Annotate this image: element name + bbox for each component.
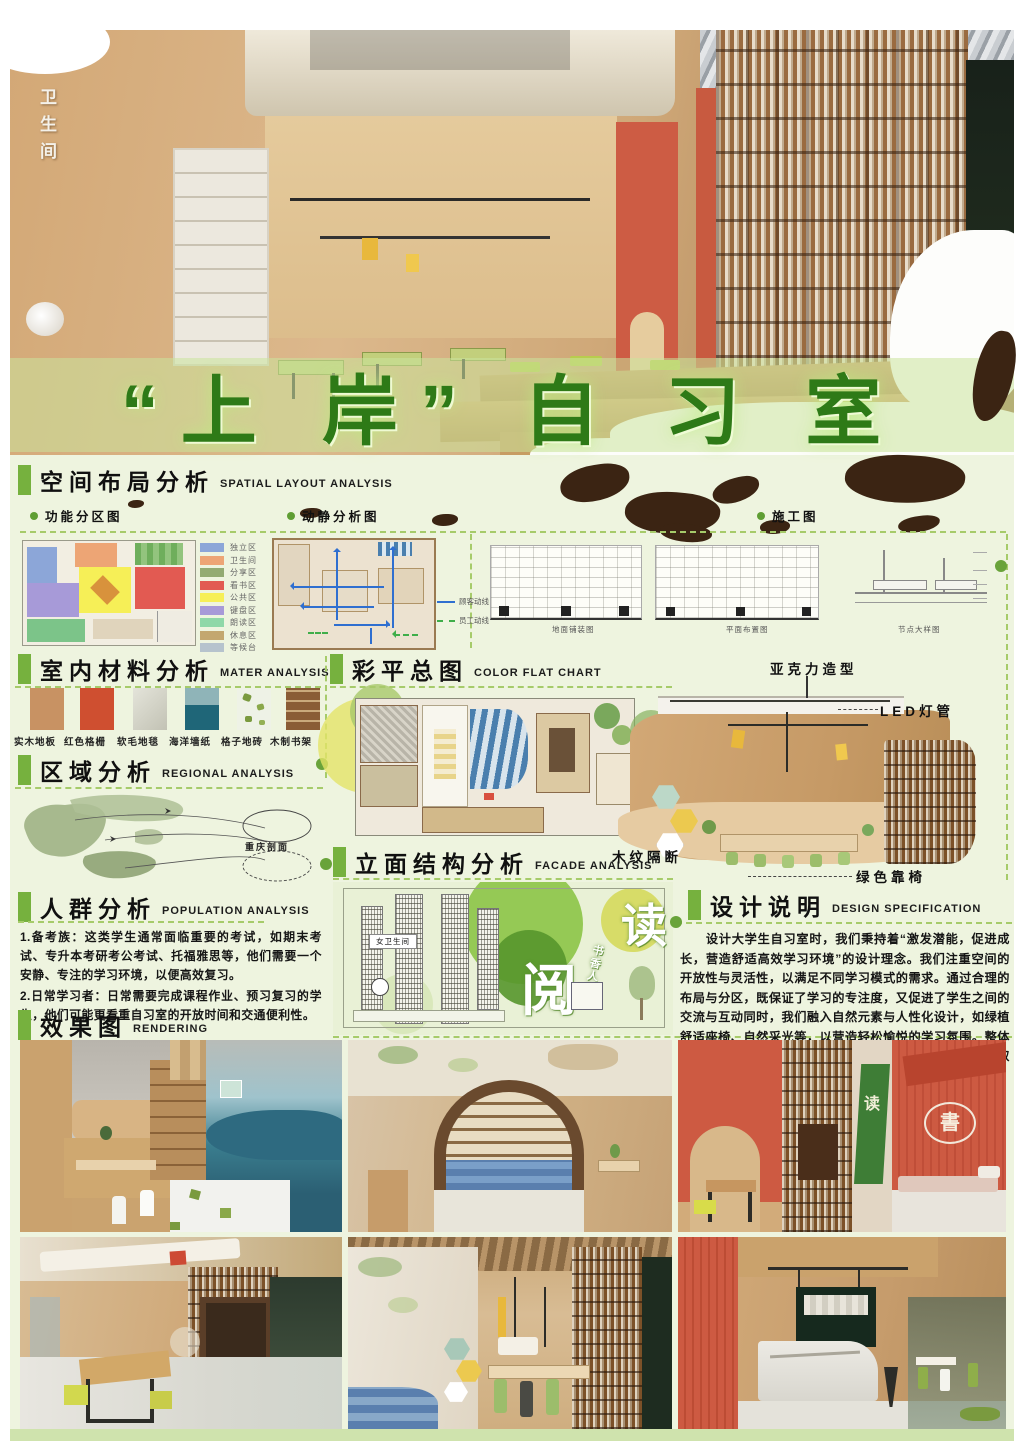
material-label: 格子地砖 <box>221 734 263 748</box>
column-mark <box>499 606 509 616</box>
plan-room <box>360 705 418 763</box>
yellow-panel <box>835 743 848 760</box>
arrow-head <box>388 630 396 638</box>
rendering-image-1 <box>20 1040 342 1232</box>
zone-legend: 独立区 卫生间 分享区 看书区 公共区 键盘区 朗读区 休息区 等候台 <box>200 542 260 655</box>
axon-table <box>720 834 858 852</box>
bookshelf-column <box>477 908 499 1010</box>
dimension-frame <box>343 888 665 1028</box>
room-outline <box>278 544 310 606</box>
zone-green <box>27 619 85 642</box>
legend-item: 卫生间 <box>200 555 260 567</box>
arrow-head <box>333 544 341 552</box>
zone-entry <box>157 611 192 642</box>
construction-drawing-2 <box>655 545 819 620</box>
section-bar <box>18 654 31 684</box>
leader-tick <box>973 552 987 553</box>
population-paragraph-1: 1.备考族：这类学生通常面临重要的考试，如期末考试、专升本考研考公考试、托福雅思… <box>20 928 322 985</box>
section-bar <box>18 465 31 495</box>
restroom-sign: 女卫生间 <box>369 934 417 949</box>
material-swatch <box>80 688 114 730</box>
rendering-image-5 <box>348 1237 672 1429</box>
rendering-image-4 <box>20 1237 342 1429</box>
circulation-plan-drawing <box>272 538 436 650</box>
node-dot-icon <box>995 560 1007 572</box>
plan-feature <box>434 729 456 779</box>
dashed-divider <box>15 787 323 789</box>
keel-box <box>935 580 977 590</box>
green-chair <box>810 854 822 867</box>
construction-drawing-1 <box>490 545 642 620</box>
plant <box>862 824 874 836</box>
leader-tick <box>973 570 987 571</box>
annotation-led: LED灯管 <box>880 700 954 720</box>
axon-bookshelf <box>884 740 976 864</box>
hero-white-corner <box>10 30 110 74</box>
zone-orange <box>75 543 117 567</box>
zone-service <box>93 619 153 639</box>
red-slab <box>696 88 716 372</box>
section-title-en: SPATIAL LAYOUT ANALYSIS <box>220 478 393 490</box>
axon-roof-band <box>658 696 904 714</box>
yellow-panel <box>731 729 745 748</box>
sub-label-zone-plan: 功能分区图 <box>30 506 123 525</box>
column-mark <box>666 607 675 616</box>
ceiling-line <box>855 592 987 594</box>
poster: 卫生间 “上 岸” 自 习 室 <box>0 0 1024 1447</box>
section-bar <box>688 890 701 920</box>
circulation-arrow <box>304 606 374 608</box>
material-label: 软毛地毯 <box>117 734 159 748</box>
section-bar <box>18 755 31 785</box>
pendant-rail <box>290 198 590 201</box>
blue-awning-plan <box>470 709 528 789</box>
material-swatch <box>185 688 219 730</box>
hero-back-wall <box>265 88 617 338</box>
circulation-arrow <box>370 628 372 644</box>
plan-room <box>360 765 418 807</box>
facade-tree <box>629 966 655 1000</box>
legend-item: 员工动线 <box>437 615 489 626</box>
axon-pendant-rail <box>728 724 868 726</box>
arrow-head <box>389 542 397 550</box>
dashed-divider <box>470 534 472 648</box>
arrow-head <box>386 620 394 628</box>
annotation-partition: 木纹隔断 <box>612 846 682 866</box>
plan-body <box>355 698 635 836</box>
leader-line <box>806 676 808 698</box>
bullet-icon <box>757 512 765 520</box>
hero-wall-sign: 卫生间 <box>34 88 59 169</box>
facade-tree-trunk <box>640 998 643 1020</box>
facade-desk <box>571 982 603 1010</box>
section-bar <box>18 1010 31 1040</box>
drawing-caption: 节点大样图 <box>898 624 941 635</box>
leader-tick <box>973 584 987 585</box>
calligraphy-yue: 阅 <box>521 946 577 1027</box>
legend-item: 朗读区 <box>200 617 260 629</box>
material-label: 实木地板 <box>14 734 56 748</box>
staff-arrow <box>308 632 328 634</box>
material-swatch <box>286 688 320 730</box>
green-chair <box>838 852 850 865</box>
section-spatial-header: 空间布局分析 SPATIAL LAYOUT ANALYSIS <box>18 463 393 497</box>
poster-title: “上 岸” 自 习 室 <box>121 350 903 460</box>
material-swatch <box>30 688 64 730</box>
rendering-image-3: 读 書 <box>678 1040 1006 1232</box>
dashed-divider <box>676 922 1012 924</box>
staff-arrow <box>394 634 418 636</box>
yellow-pendant-light <box>362 238 378 260</box>
green-chair <box>754 854 766 867</box>
leader-line <box>838 709 878 710</box>
room-outline <box>378 568 424 604</box>
hero-display-shelf <box>173 148 269 366</box>
zone-green-striped <box>135 543 183 565</box>
annotation-chair: 绿色靠椅 <box>856 866 926 886</box>
bullet-icon <box>30 512 38 520</box>
map-label: 重庆剖面 <box>245 840 289 853</box>
arrow-head <box>296 602 304 610</box>
column-mark <box>619 606 629 616</box>
column-mark <box>736 607 745 616</box>
node-dot-icon <box>670 916 682 928</box>
material-swatch <box>237 688 271 730</box>
dashed-divider <box>18 921 264 923</box>
drawing-caption: 平面布置图 <box>726 624 769 635</box>
legend-item: 休息区 <box>200 630 260 642</box>
facade-steps <box>353 1010 505 1022</box>
arrow-head <box>286 582 294 590</box>
construction-drawing-3 <box>855 550 987 614</box>
legend-item: 顾客动线 <box>437 596 489 607</box>
material-label: 木制书架 <box>270 734 312 748</box>
bottom-strip <box>10 1429 1014 1441</box>
green-chair <box>782 855 794 868</box>
zone-plan-drawing <box>22 540 196 646</box>
section-materials-header: 室内材料分析 MATER ANALYSIS <box>18 652 330 686</box>
circulation-arrow <box>336 550 338 620</box>
hero-ceiling-shadow <box>310 30 570 70</box>
section-bar <box>330 654 343 684</box>
section-design-header: 设计说明 DESIGN SPECIFICATION <box>688 888 981 922</box>
material-swatch <box>133 688 167 730</box>
legend-item: 独立区 <box>200 542 260 554</box>
dashed-divider <box>20 531 1006 533</box>
regional-map: 重庆剖面 <box>15 790 327 886</box>
axon-pendant-stem <box>786 712 788 772</box>
plan-red-accent <box>484 793 494 800</box>
circulation-arrow <box>392 548 394 628</box>
column-mark <box>561 606 571 616</box>
section-regional-header: 区域分析 REGIONAL ANALYSIS <box>18 753 294 787</box>
sub-label-construction: 施工图 <box>757 506 819 525</box>
plant <box>702 820 716 834</box>
leader-line <box>748 876 852 877</box>
sub-label-circulation: 动静分析图 <box>287 506 380 525</box>
ceiling-line <box>855 602 987 603</box>
section-bar <box>18 892 31 922</box>
calligraphy-du: 读 <box>621 890 667 956</box>
material-label: 海洋墙纸 <box>169 734 211 748</box>
annotation-acrylic: 亚克力造型 <box>770 658 858 678</box>
circulation-arrow <box>294 586 384 588</box>
material-label: 红色格栅 <box>64 734 106 748</box>
facade-drawing: 女卫生间 读 阅 书香人生 <box>333 882 673 1035</box>
zone-red <box>135 567 185 609</box>
circulation-legend: 顾客动线 员工动线 <box>437 596 489 626</box>
green-chair <box>726 852 738 865</box>
rendering-image-6 <box>678 1237 1006 1429</box>
rendering-image-2 <box>348 1040 672 1232</box>
yellow-pendant-light <box>406 254 419 272</box>
bookshelf-column <box>395 894 423 1024</box>
map-graphic <box>15 790 327 886</box>
circulation-arrow <box>334 624 390 626</box>
legend-item: 分享区 <box>200 567 260 579</box>
title-band: “上 岸” 自 习 室 <box>10 358 1014 452</box>
bullet-icon <box>287 512 295 520</box>
section-title-zh: 空间布局分析 <box>40 463 214 497</box>
section-colorflat-header: 彩平总图 COLOR FLAT CHART <box>330 652 602 686</box>
zone-purple <box>27 583 79 617</box>
section-population-header: 人群分析 POPULATION ANALYSIS <box>18 890 310 924</box>
bookshelf-column <box>441 894 469 1024</box>
axon-led-line <box>670 700 890 702</box>
plan-room <box>536 713 590 793</box>
legend-item: 键盘区 <box>200 605 260 617</box>
section-rendering-header: 效果图 RENDERING <box>18 1008 208 1042</box>
legend-item: 看书区 <box>200 580 260 592</box>
clock-icon <box>371 978 389 996</box>
pendant-rail <box>320 236 550 239</box>
plan-room <box>422 807 544 833</box>
drawing-caption: 地面铺装图 <box>552 624 595 635</box>
section-bar <box>333 847 346 877</box>
bookshelf-column <box>361 906 383 1020</box>
legend-item: 公共区 <box>200 592 260 604</box>
leader-tick <box>973 598 987 599</box>
keel-box <box>873 580 927 590</box>
wall-lamp <box>26 302 64 336</box>
column-mark <box>802 607 811 616</box>
